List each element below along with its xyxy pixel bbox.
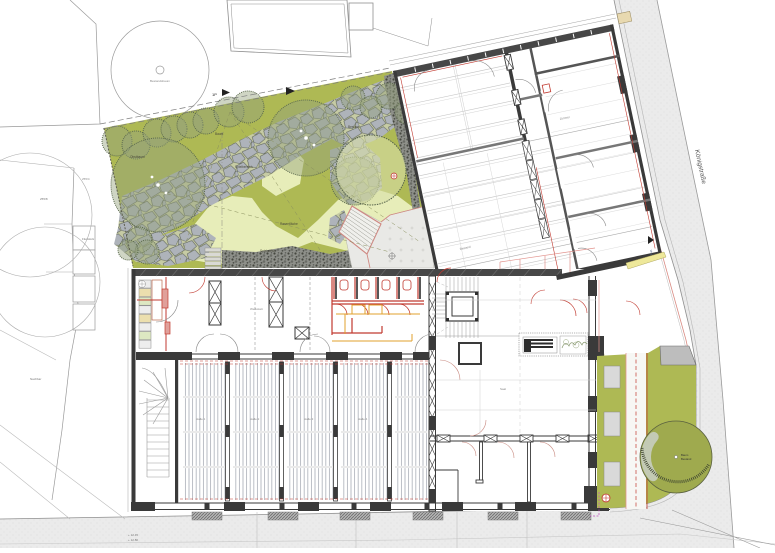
- svg-text:Spielbereich: Spielbereich: [235, 165, 253, 169]
- svg-text:+ 12.45: + 12.45: [128, 533, 138, 537]
- svg-text:Nachbar: Nachbar: [30, 377, 41, 381]
- svg-text:Obstbaum: Obstbaum: [130, 155, 145, 159]
- svg-text:+ 12.80: + 12.80: [128, 538, 138, 542]
- svg-text:Spielwiese: Spielwiese: [260, 249, 275, 253]
- svg-text:Baum: Baum: [215, 132, 224, 136]
- svg-text:255/8: 255/8: [40, 197, 48, 201]
- svg-text:Flurstück: Flurstück: [82, 237, 95, 241]
- svg-text:Halle 3: Halle 3: [304, 417, 314, 421]
- svg-text:Halle 2: Halle 2: [250, 417, 260, 421]
- svg-text:Halle 1: Halle 1: [196, 417, 206, 421]
- svg-text:Bestandsbaum: Bestandsbaum: [150, 79, 171, 83]
- svg-text:Bestand: Bestand: [681, 457, 692, 461]
- svg-text:Bestand: Bestand: [348, 125, 360, 129]
- svg-text:Rasenfläche: Rasenfläche: [280, 222, 298, 226]
- svg-text:1P: 1P: [212, 92, 217, 97]
- svg-text:255/4: 255/4: [82, 177, 90, 181]
- svg-text:Halle 4: Halle 4: [358, 417, 368, 421]
- svg-text:Werkstatt: Werkstatt: [250, 307, 263, 311]
- svg-text:Saal: Saal: [500, 387, 506, 391]
